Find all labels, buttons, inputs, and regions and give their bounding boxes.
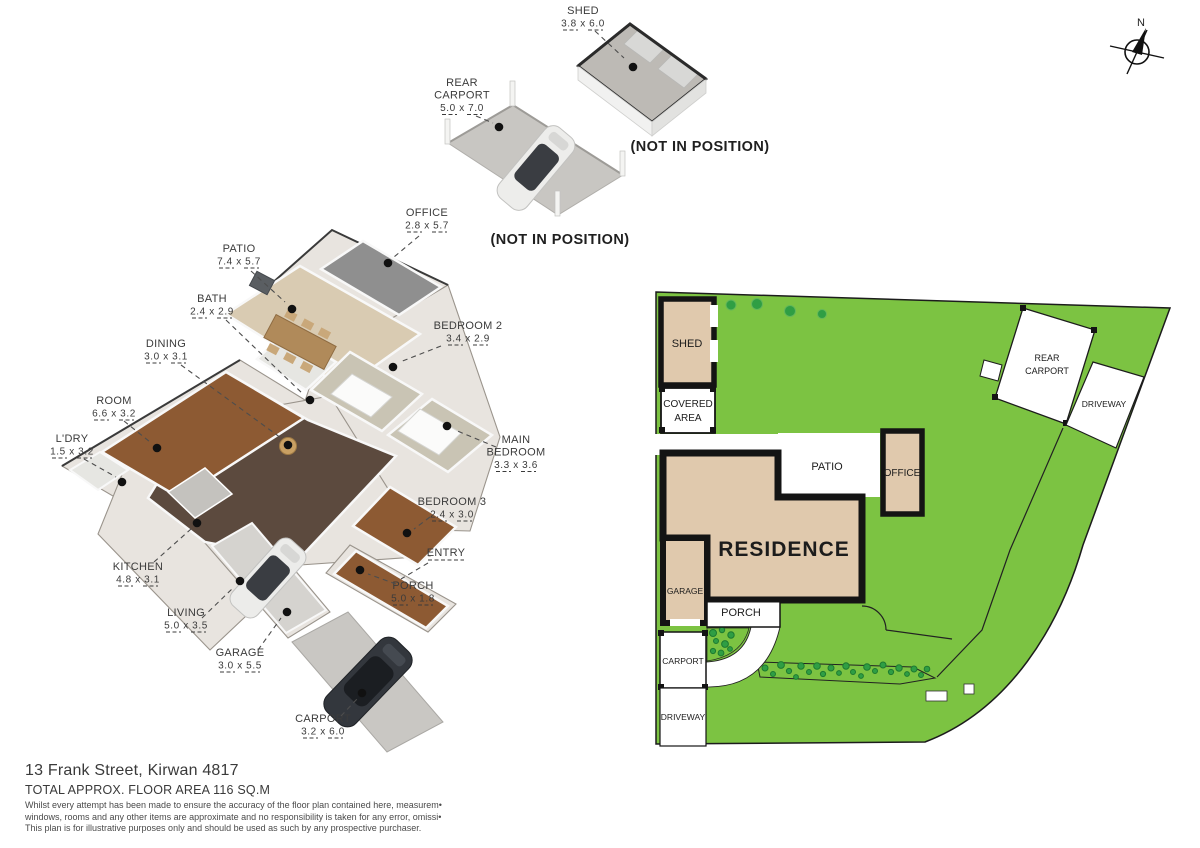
fp-dim-bedroom2: 3.4 x 2.9 xyxy=(446,334,490,345)
site-shed-door-gap xyxy=(710,340,718,362)
fp-label-text-entry: ENTRY xyxy=(427,547,466,559)
fp-dim-shed: 3.8 x 6.0 xyxy=(561,19,605,30)
disclaimer-line-1: Whilst every attempt has been made to en… xyxy=(25,800,442,812)
shrub-dot xyxy=(771,672,776,677)
fp-dim-bedroom3: 2.4 x 3.0 xyxy=(430,510,474,521)
fp-dim-office: 2.8 x 5.7 xyxy=(405,221,449,232)
shrub-dot xyxy=(919,673,924,678)
room-marker-dot xyxy=(403,529,412,538)
room-marker-dot xyxy=(443,422,452,431)
carport-post xyxy=(445,119,450,144)
shrub-dot xyxy=(924,666,930,672)
fp-dim-rear-carport: 5.0 x 7.0 xyxy=(440,103,484,114)
shrub-dot xyxy=(843,663,849,669)
room-marker-dot xyxy=(356,566,365,575)
fp-label-text-main-bedroom: MAIN xyxy=(502,434,531,446)
shrub-dot xyxy=(714,639,719,644)
shrub-dot xyxy=(728,647,733,652)
room-marker-dot xyxy=(283,608,292,617)
fp-label-text-garage: GARAGE xyxy=(216,647,265,659)
floorplan-page: SHED COVERED AREA PATIO OFFICE RESIDENCE… xyxy=(0,0,1200,848)
fp-dim-bath: 2.4 x 2.9 xyxy=(190,307,234,318)
fp-dim-patio: 7.4 x 5.7 xyxy=(217,257,261,268)
site-label-covered-1: COVERED xyxy=(663,399,712,410)
site-label-rear-carport-2: CARPORT xyxy=(1025,366,1069,376)
site-label-garage: GARAGE xyxy=(667,586,704,596)
corner-post xyxy=(702,630,708,636)
room-marker-dot xyxy=(236,577,245,586)
fp-label-text-rear-carport: REAR xyxy=(446,77,478,89)
fp-label-text-shed: SHED xyxy=(567,5,599,17)
shrub-dot xyxy=(880,662,886,668)
fp-label-text-bedroom2: BEDROOM 2 xyxy=(434,320,503,332)
disclaimer-line-3: This plan is for illustrative purposes o… xyxy=(25,823,442,835)
site-garage xyxy=(663,538,707,623)
site-label-rear-driveway: DRIVEWAY xyxy=(1082,399,1127,409)
carport-post xyxy=(555,191,560,216)
shrub-dot xyxy=(786,668,791,673)
shrub-dot xyxy=(710,630,717,637)
site-label-carport: CARPORT xyxy=(662,656,703,666)
fp-dim-room: 6.6 x 3.2 xyxy=(92,409,136,420)
shrub-dot xyxy=(778,662,785,669)
fp-label-text-patio: PATIO xyxy=(223,243,256,255)
shrub-dot xyxy=(888,669,893,674)
fp-label-text-room: ROOM xyxy=(96,395,131,407)
shrub-dot xyxy=(728,632,734,638)
corner-post xyxy=(992,394,998,400)
site-label-rear-carport-1: REAR xyxy=(1034,353,1060,363)
shrub-dot xyxy=(722,641,729,648)
room-marker-dot xyxy=(495,123,504,132)
site-shed-door-gap xyxy=(710,305,718,327)
shrub-dot xyxy=(762,665,768,671)
not-in-position-carport: (NOT IN POSITION) xyxy=(491,232,630,248)
fp-dim-main-bedroom: 3.3 x 3.6 xyxy=(494,460,538,471)
shrub-dot xyxy=(896,665,902,671)
room-marker-dot xyxy=(118,478,127,487)
shrub-dot xyxy=(859,674,864,679)
floorplan-canvas: SHED COVERED AREA PATIO OFFICE RESIDENCE… xyxy=(0,0,1200,848)
fp-label-text-kitchen: KITCHEN xyxy=(113,561,163,573)
site-label-driveway: DRIVEWAY xyxy=(661,712,706,722)
floorplan-3d-render xyxy=(62,230,500,752)
corner-post xyxy=(1091,327,1097,333)
site-label-residence: RESIDENCE xyxy=(718,538,850,561)
disclaimer-line-2: windows, rooms and any other items are a… xyxy=(25,812,442,824)
fp-label-text-bedroom3: BEDROOM 3 xyxy=(418,496,487,508)
site-label-patio: PATIO xyxy=(811,461,843,473)
shrub-dot xyxy=(785,306,796,317)
shrub-dot xyxy=(718,650,724,656)
room-marker-dot xyxy=(288,305,297,314)
room-marker-dot xyxy=(384,259,393,268)
site-label-porch: PORCH xyxy=(721,607,761,619)
corner-post xyxy=(659,427,665,433)
corner-post xyxy=(710,386,716,392)
site-bin-small xyxy=(964,684,974,694)
site-label-shed: SHED xyxy=(672,338,703,350)
shrub-dot xyxy=(864,664,871,671)
shrub-dot xyxy=(820,671,825,676)
site-bin xyxy=(926,691,947,701)
room-marker-dot xyxy=(306,396,315,405)
corner-post xyxy=(710,427,716,433)
room-marker-dot xyxy=(153,444,162,453)
compass-icon: N xyxy=(1110,17,1164,74)
fp-label-text-porch: PORCH xyxy=(392,580,433,592)
fp-label-text-office: OFFICE xyxy=(406,207,448,219)
fp-dim-carport: 3.2 x 6.0 xyxy=(301,727,345,738)
room-marker-dot xyxy=(389,363,398,372)
property-address: 13 Frank Street, Kirwan 4817 xyxy=(25,762,442,780)
fp-label-text-ldry: L'DRY xyxy=(56,433,89,445)
shrub-dot xyxy=(726,300,736,310)
label-leader xyxy=(394,236,419,257)
corner-post xyxy=(1020,305,1026,311)
shrub-dot xyxy=(807,670,812,675)
shrub-dot xyxy=(794,675,799,680)
fp-label-text-living: LIVING xyxy=(167,607,205,619)
shrub-dot xyxy=(851,670,856,675)
carport-post xyxy=(620,151,625,176)
room-marker-dot xyxy=(629,63,638,72)
shrub-dot xyxy=(719,627,724,632)
fp-dim-dining: 3.0 x 3.1 xyxy=(144,352,188,363)
site-label-covered-2: AREA xyxy=(674,413,702,424)
corner-post xyxy=(658,630,664,636)
shrub-dot xyxy=(752,299,763,310)
room-marker-dot xyxy=(358,689,367,698)
carport-post xyxy=(510,81,515,106)
shrub-dot xyxy=(905,672,910,677)
not-in-position-shed: (NOT IN POSITION) xyxy=(631,139,770,155)
shrub-dot xyxy=(798,663,804,669)
shrub-dot xyxy=(837,671,842,676)
fp-dim-living: 5.0 x 3.5 xyxy=(164,621,208,632)
shrub-dot xyxy=(911,666,917,672)
title-block: 13 Frank Street, Kirwan 4817 TOTAL APPRO… xyxy=(25,762,442,835)
site-garage-door-gap xyxy=(670,619,700,626)
site-covered-area xyxy=(661,388,715,433)
room-marker-dot xyxy=(193,519,202,528)
shrub-dot xyxy=(710,648,715,653)
site-label-office: OFFICE xyxy=(884,468,921,479)
fp-dim-kitchen: 4.8 x 3.1 xyxy=(116,575,160,586)
fp-label-text-rear-carport: CARPORT xyxy=(434,90,490,102)
corner-post xyxy=(659,386,665,392)
fp-dim-porch: 5.0 x 1.8 xyxy=(391,594,435,605)
fp-label-text-bath: BATH xyxy=(197,293,227,305)
disclaimer-text: Whilst every attempt has been made to en… xyxy=(25,800,442,835)
shed-3d-render xyxy=(578,24,706,136)
fp-label-rear-carport: REARCARPORT5.0 x 7.0 xyxy=(434,77,503,131)
shrub-dot xyxy=(828,665,834,671)
site-plan: SHED COVERED AREA PATIO OFFICE RESIDENCE… xyxy=(649,292,1170,746)
compass-north-label: N xyxy=(1137,17,1145,29)
shrub-dot xyxy=(873,669,878,674)
fp-label-text-dining: DINING xyxy=(146,338,186,350)
shrub-dot xyxy=(814,663,821,670)
fp-dim-ldry: 1.5 x 3.2 xyxy=(50,447,94,458)
floor-area-text: TOTAL APPROX. FLOOR AREA 116 SQ.M xyxy=(25,783,442,797)
fp-label-text-main-bedroom: BEDROOM xyxy=(487,447,546,459)
room-marker-dot xyxy=(284,441,293,450)
fp-dim-garage: 3.0 x 5.5 xyxy=(218,661,262,672)
shrub-dot xyxy=(818,310,827,319)
